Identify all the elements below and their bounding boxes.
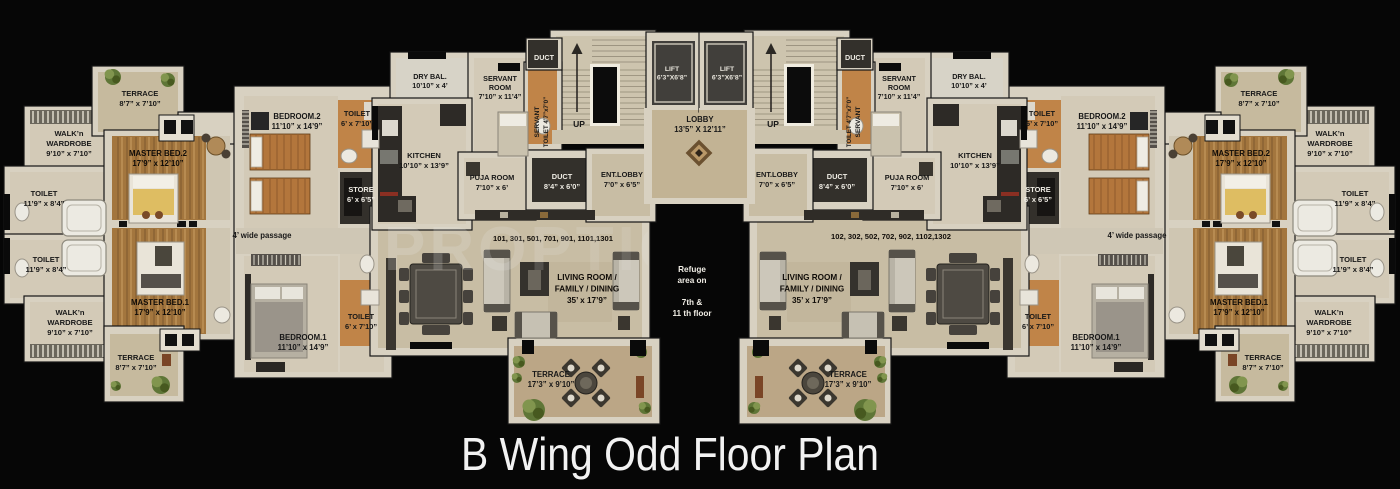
svg-text:6’ x 6’5”: 6’ x 6’5” <box>1024 195 1052 204</box>
svg-text:MASTER BED.1: MASTER BED.1 <box>131 298 190 307</box>
svg-text:6’ x 7’10”: 6’ x 7’10” <box>345 322 377 331</box>
svg-text:STORE: STORE <box>348 185 373 194</box>
svg-text:FAMILY / DINING: FAMILY / DINING <box>780 285 845 294</box>
svg-text:MASTER BED.1: MASTER BED.1 <box>1210 298 1269 307</box>
svg-text:ROOM: ROOM <box>489 83 511 92</box>
svg-text:WARDROBE: WARDROBE <box>47 318 92 327</box>
svg-text:TOILET: TOILET <box>1029 109 1056 118</box>
svg-text:DUCT: DUCT <box>827 172 848 181</box>
svg-text:11’9” x 8’4”: 11’9” x 8’4” <box>1335 199 1376 208</box>
svg-text:17’3” x 9’10”: 17’3” x 9’10” <box>528 380 575 389</box>
svg-text:7’0” x 6’5”: 7’0” x 6’5” <box>759 180 795 189</box>
svg-text:SERVANT: SERVANT <box>483 74 517 83</box>
svg-text:10’10” x 4’: 10’10” x 4’ <box>412 81 448 90</box>
svg-text:FAMILY / DINING: FAMILY / DINING <box>555 285 620 294</box>
svg-text:6’ x 7’10”: 6’ x 7’10” <box>1022 322 1054 331</box>
svg-text:35’ x 17’9”: 35’ x 17’9” <box>567 296 607 305</box>
svg-text:TOILET: TOILET <box>33 255 60 264</box>
svg-text:SERVANT: SERVANT <box>534 107 541 138</box>
svg-text:BEDROOM.1: BEDROOM.1 <box>279 333 327 342</box>
svg-text:DRY BAL.: DRY BAL. <box>952 72 986 81</box>
svg-text:10’10” x 13’9”: 10’10” x 13’9” <box>950 161 1000 170</box>
svg-text:7’10” x 6’: 7’10” x 6’ <box>476 183 508 192</box>
svg-text:STORE: STORE <box>1025 185 1050 194</box>
svg-text:8’7” x 7’10”: 8’7” x 7’10” <box>119 99 161 108</box>
svg-text:7th &: 7th & <box>682 298 703 307</box>
svg-text:TERRACE: TERRACE <box>118 353 155 362</box>
svg-text:KITCHEN: KITCHEN <box>407 151 441 160</box>
svg-text:17’9” x 12’10”: 17’9” x 12’10” <box>134 308 185 317</box>
svg-text:8’4” x 6’0”: 8’4” x 6’0” <box>544 182 580 191</box>
svg-text:13’5” X 12’11”: 13’5” X 12’11” <box>674 125 726 134</box>
svg-text:TOILET: TOILET <box>1342 189 1369 198</box>
svg-text:102, 302, 502, 702, 902, 1102,: 102, 302, 502, 702, 902, 1102,1302 <box>831 232 951 241</box>
svg-text:7’10” x 6’: 7’10” x 6’ <box>891 183 923 192</box>
svg-text:TOILET 4’7”x7’0”: TOILET 4’7”x7’0” <box>846 97 853 147</box>
svg-text:9’10” x 7’10”: 9’10” x 7’10” <box>1306 328 1352 337</box>
svg-text:11’9” x 8’4”: 11’9” x 8’4” <box>1333 265 1374 274</box>
svg-text:SERVANT: SERVANT <box>882 74 916 83</box>
svg-text:LIFT: LIFT <box>720 66 735 73</box>
svg-text:17’9” x 12’10”: 17’9” x 12’10” <box>1215 159 1266 168</box>
svg-text:WARDROBE: WARDROBE <box>1307 139 1352 148</box>
svg-text:TERRACE: TERRACE <box>532 370 570 379</box>
svg-text:WALK’n: WALK’n <box>54 129 83 138</box>
svg-text:6’3”X6’8”: 6’3”X6’8” <box>712 75 742 82</box>
svg-text:MASTER BED.2: MASTER BED.2 <box>129 149 188 158</box>
svg-text:Refuge: Refuge <box>678 265 706 274</box>
svg-text:7’10” x 11’4”: 7’10” x 11’4” <box>479 92 522 101</box>
svg-text:ENT.LOBBY: ENT.LOBBY <box>601 170 643 179</box>
svg-text:WALK’n: WALK’n <box>55 308 84 317</box>
svg-text:BEDROOM.2: BEDROOM.2 <box>273 112 321 121</box>
svg-text:11’10” x 14’9”: 11’10” x 14’9” <box>272 122 323 131</box>
svg-text:9’10” x 7’10”: 9’10” x 7’10” <box>46 149 92 158</box>
svg-text:8’7” x 7’10”: 8’7” x 7’10” <box>115 363 157 372</box>
svg-text:10’10” x 4’: 10’10” x 4’ <box>951 81 987 90</box>
svg-text:UP: UP <box>767 119 779 129</box>
svg-text:6’ x 6’5”: 6’ x 6’5” <box>347 195 375 204</box>
svg-text:11’9” x 8’4”: 11’9” x 8’4” <box>26 265 67 274</box>
svg-text:35’ x 17’9”: 35’ x 17’9” <box>792 296 832 305</box>
svg-text:DUCT: DUCT <box>845 53 866 62</box>
svg-text:4’ wide passage: 4’ wide passage <box>233 231 293 240</box>
svg-text:11’10” x 14’9”: 11’10” x 14’9” <box>1071 343 1122 352</box>
svg-text:17’9” x 12’10”: 17’9” x 12’10” <box>1213 308 1264 317</box>
svg-text:LIFT: LIFT <box>665 66 680 73</box>
svg-text:TOILET 4’7”x7’0”: TOILET 4’7”x7’0” <box>543 97 550 147</box>
svg-text:LIVING ROOM /: LIVING ROOM / <box>782 273 842 282</box>
svg-text:6’ x 7’10”: 6’ x 7’10” <box>1026 119 1058 128</box>
svg-text:9’10” x 7’10”: 9’10” x 7’10” <box>1307 149 1353 158</box>
svg-text:11’9” x 8’4”: 11’9” x 8’4” <box>24 199 65 208</box>
svg-text:TERRACE: TERRACE <box>1241 89 1278 98</box>
svg-text:DUCT: DUCT <box>552 172 573 181</box>
svg-text:UP: UP <box>573 119 585 129</box>
svg-text:6’ x 7’10”: 6’ x 7’10” <box>341 119 373 128</box>
svg-text:KITCHEN: KITCHEN <box>958 151 992 160</box>
svg-text:B Wing Odd Floor Plan: B Wing Odd Floor Plan <box>461 428 879 480</box>
svg-text:4’ wide passage: 4’ wide passage <box>1108 231 1168 240</box>
svg-text:WARDROBE: WARDROBE <box>1306 318 1351 327</box>
svg-text:17’3” x 9’10”: 17’3” x 9’10” <box>825 380 872 389</box>
svg-text:WALK’n: WALK’n <box>1314 308 1343 317</box>
svg-text:TOILET: TOILET <box>1340 255 1367 264</box>
svg-text:SERVANT: SERVANT <box>855 107 862 138</box>
svg-text:MASTER BED.2: MASTER BED.2 <box>1212 149 1271 158</box>
svg-text:TERRACE: TERRACE <box>1245 353 1282 362</box>
svg-text:area on: area on <box>677 276 706 285</box>
svg-text:TERRACE: TERRACE <box>122 89 159 98</box>
svg-text:BEDROOM.1: BEDROOM.1 <box>1072 333 1120 342</box>
svg-text:8’7” x 7’10”: 8’7” x 7’10” <box>1238 99 1280 108</box>
svg-text:BEDROOM.2: BEDROOM.2 <box>1078 112 1126 121</box>
svg-text:11 th floor: 11 th floor <box>672 309 712 318</box>
svg-text:9’10” x 7’10”: 9’10” x 7’10” <box>47 328 93 337</box>
svg-text:17’9” x 12’10”: 17’9” x 12’10” <box>132 159 183 168</box>
svg-text:DUCT: DUCT <box>534 53 555 62</box>
svg-text:TOILET: TOILET <box>1025 312 1052 321</box>
svg-text:7’10” x 11’4”: 7’10” x 11’4” <box>878 92 921 101</box>
svg-text:ENT.LOBBY: ENT.LOBBY <box>756 170 798 179</box>
svg-text:6’3”X6’8”: 6’3”X6’8” <box>657 75 687 82</box>
svg-text:10’10” x 13’9”: 10’10” x 13’9” <box>399 161 449 170</box>
svg-text:TERRACE: TERRACE <box>829 370 867 379</box>
svg-text:DRY BAL.: DRY BAL. <box>413 72 447 81</box>
svg-text:TOILET: TOILET <box>31 189 58 198</box>
svg-text:11’10” x 14’9”: 11’10” x 14’9” <box>278 343 329 352</box>
svg-text:8’7” x 7’10”: 8’7” x 7’10” <box>1242 363 1284 372</box>
svg-text:ROOM: ROOM <box>888 83 910 92</box>
svg-text:WARDROBE: WARDROBE <box>46 139 91 148</box>
svg-text:LOBBY: LOBBY <box>686 115 714 124</box>
svg-text:TOILET: TOILET <box>348 312 375 321</box>
svg-text:PUJA ROOM: PUJA ROOM <box>470 173 514 182</box>
svg-text:TOILET: TOILET <box>344 109 371 118</box>
svg-text:8’4” x 6’0”: 8’4” x 6’0” <box>819 182 855 191</box>
svg-text:7’0” x 6’5”: 7’0” x 6’5” <box>604 180 640 189</box>
svg-text:PUJA ROOM: PUJA ROOM <box>885 173 929 182</box>
svg-text:11’10” x 14’9”: 11’10” x 14’9” <box>1077 122 1128 131</box>
svg-text:WALK’n: WALK’n <box>1315 129 1344 138</box>
